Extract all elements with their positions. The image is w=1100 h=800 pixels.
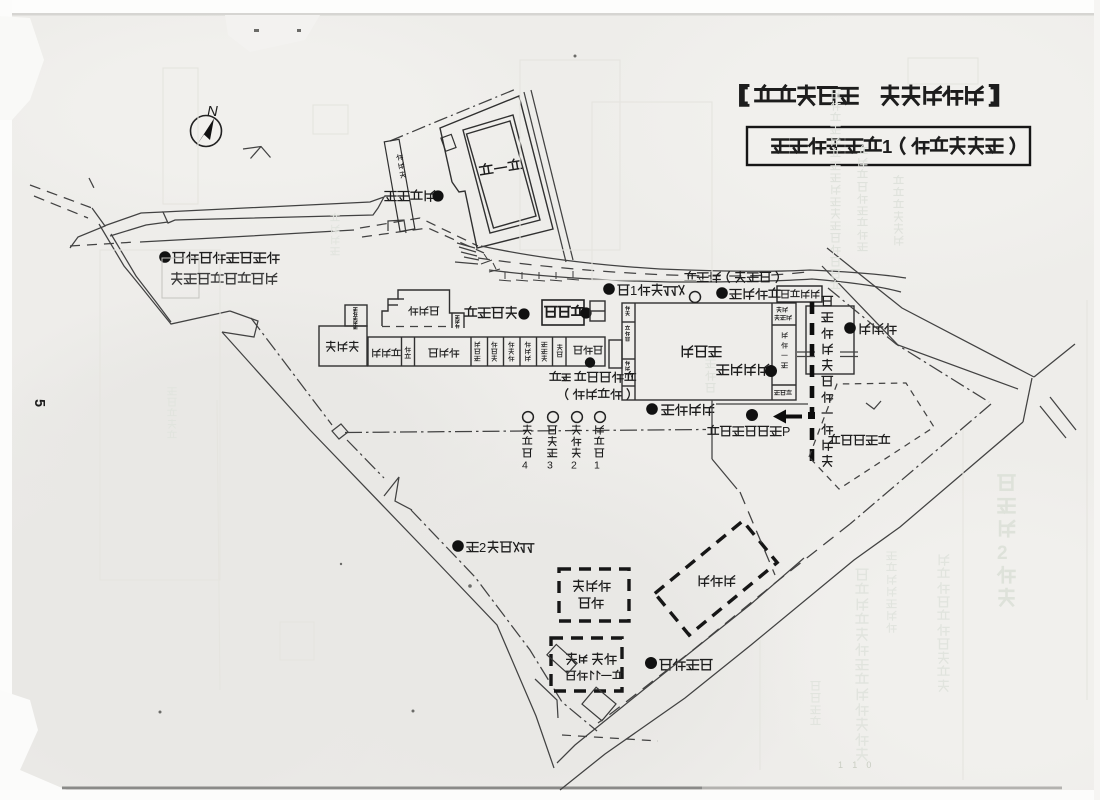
svg-text:1: 1 [852,760,857,770]
svg-text:1: 1 [594,460,600,472]
svg-text:2: 2 [997,543,1008,564]
svg-text:2: 2 [571,460,577,472]
svg-text:3: 3 [547,460,553,472]
svg-text:5: 5 [31,399,47,407]
svg-text:P: P [782,425,790,439]
svg-text:0: 0 [866,760,871,770]
svg-text:4: 4 [522,460,528,472]
svg-text:N: N [207,103,218,120]
svg-text:2: 2 [479,540,486,555]
svg-text:1: 1 [630,283,637,298]
svg-text:1: 1 [838,760,843,770]
svg-text:1: 1 [882,136,892,157]
